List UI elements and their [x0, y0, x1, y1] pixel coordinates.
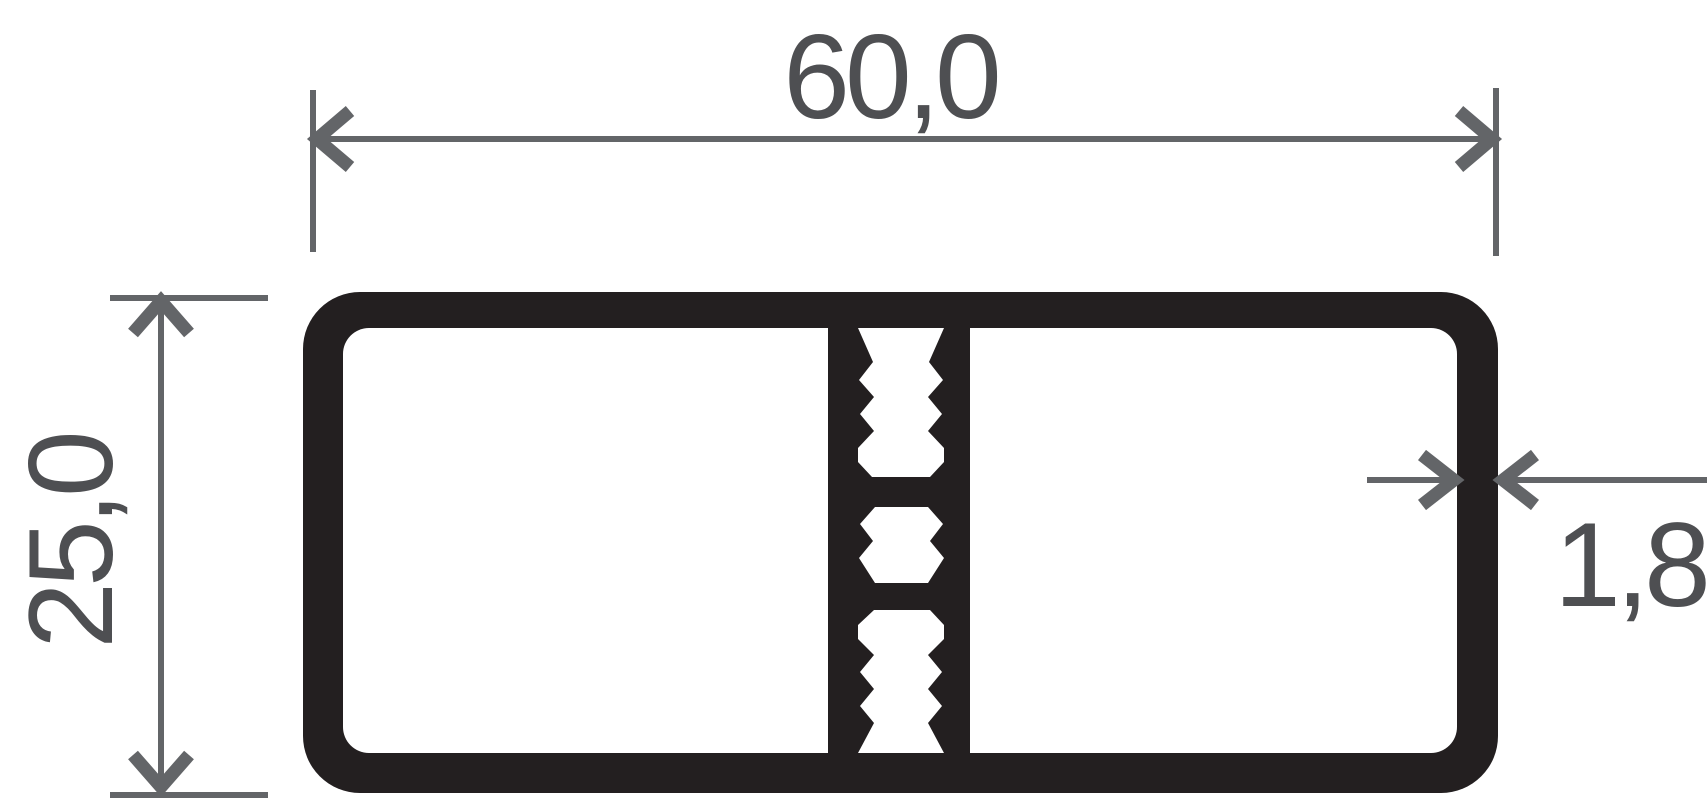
diagram-canvas: 60,0 25,0 1,8	[0, 0, 1707, 800]
thickness-dimension-label: 1,8	[1554, 498, 1706, 632]
height-dimension-label: 25,0	[4, 434, 138, 649]
cross-section-diagram: 60,0 25,0 1,8	[0, 0, 1707, 800]
width-dimension-label: 60,0	[783, 10, 998, 144]
profile-shape	[303, 292, 1498, 793]
screw-channel-middle-segment	[859, 507, 944, 583]
screw-channel-bottom-segment	[858, 610, 944, 753]
screw-channel-top-segment	[858, 328, 944, 477]
